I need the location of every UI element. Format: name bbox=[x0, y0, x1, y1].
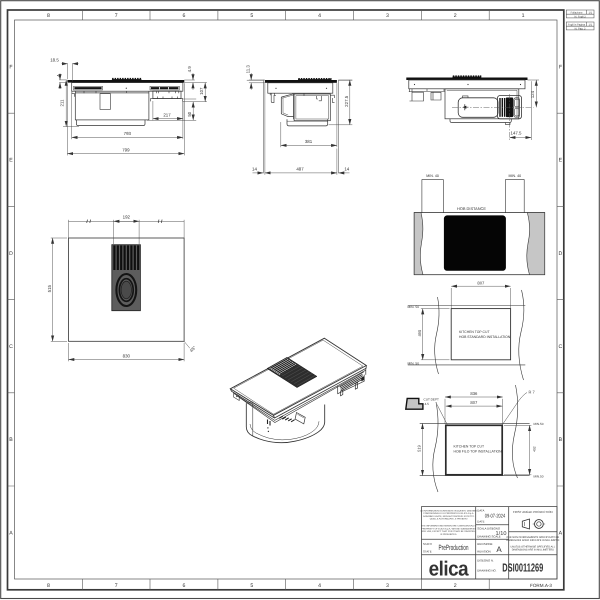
svg-text:DIMENSIONI SONO INDICATE IN MI: DIMENSIONI SONO INDICATE IN MILLIMETRI bbox=[506, 539, 559, 542]
svg-text:D: D bbox=[559, 251, 563, 257]
svg-text:ANY USE, EXCEPT THAT FOR IT MA: ANY USE, EXCEPT THAT FOR IT MAY BE GRANT… bbox=[422, 530, 476, 533]
svg-text:DATA: DATA bbox=[477, 509, 484, 513]
svg-text:1/10: 1/10 bbox=[496, 530, 507, 537]
svg-text:6: 6 bbox=[182, 13, 185, 19]
svg-text:1/1: 1/1 bbox=[588, 11, 592, 14]
svg-text:7: 7 bbox=[115, 13, 118, 19]
svg-text:807: 807 bbox=[470, 400, 478, 405]
svg-text:F: F bbox=[559, 65, 562, 71]
svg-text:MIN. 40: MIN. 40 bbox=[426, 174, 439, 178]
svg-text:QUELLE AUTORIZZATE, E PROIBITO: QUELLE AUTORIZZATE, E PROIBITO bbox=[430, 518, 468, 521]
svg-text:MIN. 50: MIN. 50 bbox=[408, 361, 420, 365]
svg-text:490: 490 bbox=[417, 329, 422, 336]
svg-text:A: A bbox=[9, 530, 13, 536]
svg-text:799: 799 bbox=[122, 147, 130, 152]
svg-text:1/1: 1/1 bbox=[588, 23, 592, 26]
svg-text:50: 50 bbox=[187, 111, 192, 116]
svg-text:6: 6 bbox=[182, 583, 185, 589]
svg-text:3: 3 bbox=[386, 583, 389, 589]
svg-text:elica: elica bbox=[429, 558, 469, 581]
svg-text:C: C bbox=[559, 344, 563, 350]
svg-text:IS PROHIBITED.: IS PROHIBITED. bbox=[440, 533, 457, 536]
svg-text:DSI0011269: DSI0011269 bbox=[502, 562, 543, 575]
svg-text:MIN.50: MIN.50 bbox=[534, 474, 544, 478]
svg-text:DIMENSIONS ARE IN MILLIMETERS: DIMENSIONS ARE IN MILLIMETERS bbox=[512, 548, 554, 551]
svg-text:8: 8 bbox=[47, 583, 50, 589]
svg-text:147.5: 147.5 bbox=[511, 131, 523, 136]
svg-text:B: B bbox=[559, 437, 563, 443]
svg-text:107: 107 bbox=[199, 87, 204, 95]
svg-text:14: 14 bbox=[252, 167, 257, 172]
svg-text:09-07-2024: 09-07-2024 bbox=[485, 514, 506, 520]
svg-text:211: 211 bbox=[60, 99, 65, 107]
svg-text:DISEGNO N.: DISEGNO N. bbox=[477, 559, 494, 563]
svg-text:HOB STANDARD INSTALLATION: HOB STANDARD INSTALLATION bbox=[459, 335, 511, 339]
svg-text:PROPRIETY OF ELICA S.p.A. WHOS: PROPRIETY OF ELICA S.p.A. WHOSE SUBSIDIA… bbox=[421, 527, 476, 530]
svg-text:D: D bbox=[9, 251, 13, 257]
svg-text:CUT DEPT: CUT DEPT bbox=[424, 397, 440, 401]
svg-text:N. Pag. 2: N. Pag. 2 bbox=[575, 28, 586, 31]
svg-text:4: 4 bbox=[318, 583, 321, 589]
svg-text:807: 807 bbox=[477, 280, 485, 285]
svg-text:124: 124 bbox=[530, 90, 535, 98]
svg-text:HOB DISTANCE: HOB DISTANCE bbox=[457, 206, 486, 211]
svg-text:519: 519 bbox=[417, 444, 422, 451]
svg-text:PreProduction: PreProduction bbox=[439, 543, 469, 552]
svg-text:STATO: STATO bbox=[423, 542, 433, 546]
svg-text:830: 830 bbox=[123, 354, 131, 359]
svg-text:381: 381 bbox=[305, 139, 313, 144]
svg-text:FIRST ANGLE PROJECTION: FIRST ANGLE PROJECTION bbox=[513, 510, 553, 514]
svg-text:4.5: 4.5 bbox=[425, 402, 430, 406]
svg-text:A: A bbox=[496, 545, 502, 554]
svg-text:A: A bbox=[559, 530, 563, 536]
svg-text:192: 192 bbox=[123, 214, 131, 219]
svg-text:7: 7 bbox=[115, 583, 118, 589]
svg-text:KITCHEN TOP CUT: KITCHEN TOP CUT bbox=[454, 445, 485, 449]
svg-text:Foliazione: Foliazione bbox=[571, 11, 583, 14]
svg-text:492: 492 bbox=[532, 446, 536, 452]
svg-text:THE INFORMATIONS HEREIN ARE CO: THE INFORMATIONS HEREIN ARE CONFIDENTIAL… bbox=[421, 525, 476, 528]
svg-text:F: F bbox=[9, 65, 12, 71]
svg-text:217: 217 bbox=[163, 112, 171, 117]
svg-text:C: C bbox=[9, 344, 13, 350]
svg-text:2: 2 bbox=[454, 583, 457, 589]
svg-text:MIN.50: MIN.50 bbox=[534, 422, 544, 426]
svg-text:227.5: 227.5 bbox=[344, 95, 349, 107]
svg-text:STATE: STATE bbox=[423, 550, 432, 554]
svg-text:836: 836 bbox=[470, 391, 478, 396]
svg-text:1: 1 bbox=[522, 13, 525, 19]
svg-text:3: 3 bbox=[386, 13, 389, 19]
svg-text:HOB FILO TOP INSTALLATION: HOB FILO TOP INSTALLATION bbox=[454, 450, 503, 454]
svg-text:14: 14 bbox=[344, 167, 349, 172]
svg-text:REVISION: REVISION bbox=[477, 550, 490, 554]
svg-text:4: 4 bbox=[318, 13, 321, 19]
svg-text:5: 5 bbox=[250, 13, 253, 19]
svg-text:B: B bbox=[9, 437, 13, 443]
svg-text:N. Fogli 2: N. Fogli 2 bbox=[575, 16, 587, 19]
svg-text:E: E bbox=[9, 158, 13, 164]
svg-text:515: 515 bbox=[47, 284, 52, 292]
svg-text:FORM.A-3: FORM.A-3 bbox=[530, 583, 552, 588]
svg-text:487: 487 bbox=[296, 167, 304, 172]
svg-text:REVISIONE: REVISIONE bbox=[477, 542, 492, 546]
svg-text:11.3: 11.3 bbox=[245, 65, 250, 74]
svg-text:LE INFORMAZIONI CONTENUTE IN Q: LE INFORMAZIONI CONTENUTE IN QUESTO DISE… bbox=[420, 509, 477, 512]
svg-text:18.5: 18.5 bbox=[50, 58, 59, 63]
svg-text:DATE: DATE bbox=[477, 520, 484, 524]
svg-text:8: 8 bbox=[47, 13, 50, 19]
svg-text:4.9: 4.9 bbox=[187, 66, 192, 73]
svg-text:R 7: R 7 bbox=[529, 390, 536, 395]
svg-text:KITCHEN TOP CUT: KITCHEN TOP CUT bbox=[459, 330, 490, 334]
svg-text:MIN. 50: MIN. 50 bbox=[408, 305, 420, 309]
svg-text:CONFIDENZIALI E DI PROPRIETA D: CONFIDENZIALI E DI PROPRIETA DI ELICA S.… bbox=[423, 512, 474, 515]
svg-text:Fogli in Pagina: Fogli in Pagina bbox=[568, 23, 586, 26]
svg-text:SARANNO USATE, NON AUTORIZZATE: SARANNO USATE, NON AUTORIZZATE ECCETTO bbox=[423, 515, 474, 518]
svg-text:DRAWING NO.: DRAWING NO. bbox=[477, 569, 496, 573]
svg-text:5: 5 bbox=[250, 583, 253, 589]
svg-text:793: 793 bbox=[124, 131, 132, 136]
svg-text:E: E bbox=[559, 158, 563, 164]
svg-text:2: 2 bbox=[454, 13, 457, 19]
svg-text:MIN. 40: MIN. 40 bbox=[509, 174, 522, 178]
